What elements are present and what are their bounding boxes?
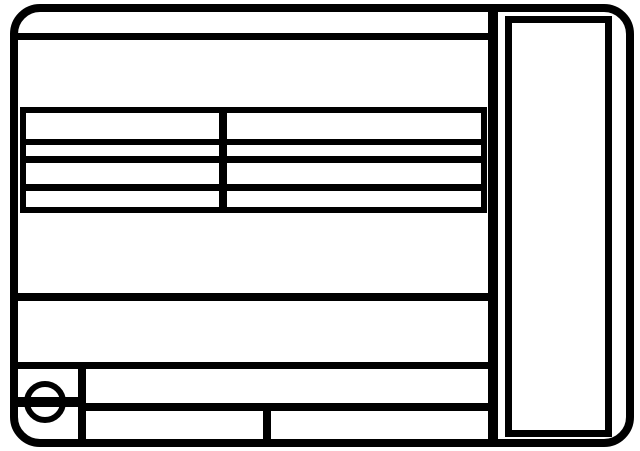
header-rule [10,33,488,40]
footer-rule [86,403,488,411]
footer-cell-divider [263,403,271,447]
table-row-divider-3 [26,184,481,191]
table-row-divider-2 [26,156,481,163]
label-diagram [0,0,640,451]
spec-table [20,107,487,213]
screw-slot-bar [13,397,86,407]
right-panel-box [505,16,612,437]
table-row-divider-1 [26,139,481,145]
column-divider [488,4,498,447]
section-rule-upper [10,293,488,301]
